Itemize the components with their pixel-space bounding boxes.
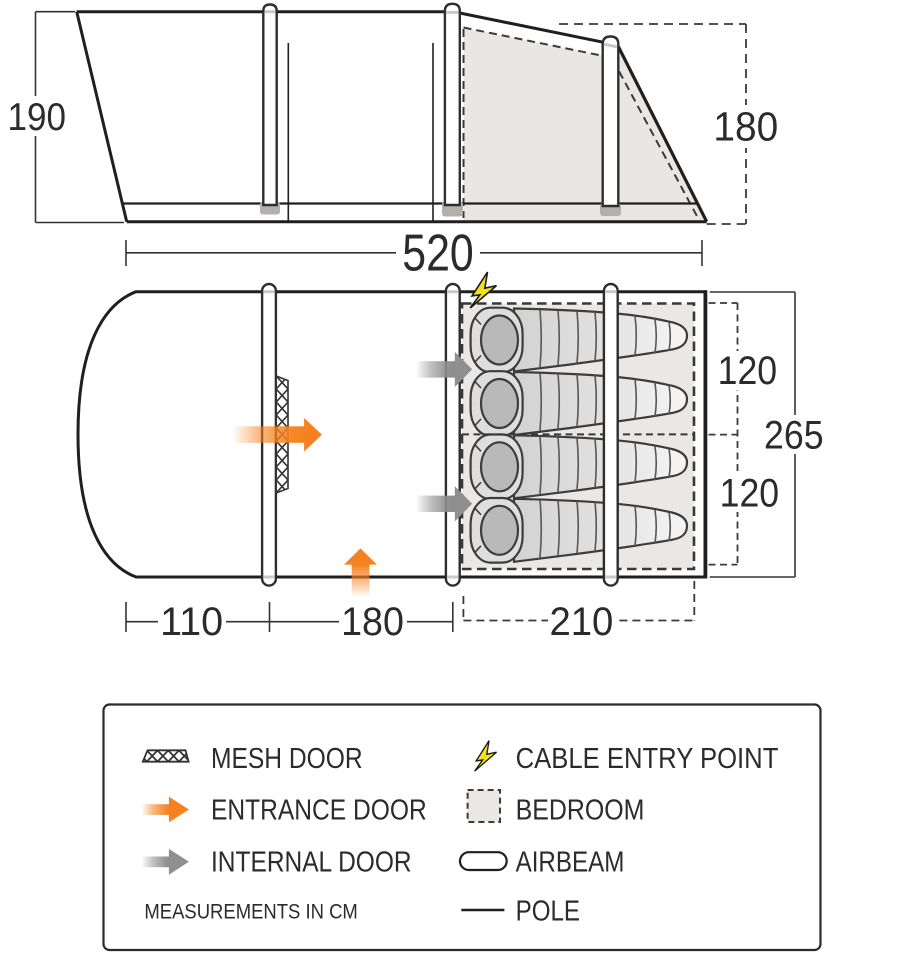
- svg-text:120: 120: [718, 349, 778, 393]
- svg-text:265: 265: [764, 413, 824, 457]
- svg-text:520: 520: [402, 224, 474, 282]
- svg-text:AIRBEAM: AIRBEAM: [516, 847, 625, 879]
- svg-text:CABLE ENTRY POINT: CABLE ENTRY POINT: [516, 743, 779, 775]
- svg-text:MESH DOOR: MESH DOOR: [211, 743, 363, 775]
- svg-text:120: 120: [720, 472, 780, 516]
- svg-text:190: 190: [8, 96, 67, 139]
- svg-text:MEASUREMENTS IN CM: MEASUREMENTS IN CM: [144, 900, 357, 923]
- svg-text:ENTRANCE DOOR: ENTRANCE DOOR: [211, 794, 427, 826]
- svg-text:180: 180: [341, 600, 404, 644]
- svg-text:INTERNAL DOOR: INTERNAL DOOR: [211, 847, 412, 879]
- svg-text:110: 110: [160, 600, 223, 644]
- svg-text:BEDROOM: BEDROOM: [516, 794, 645, 826]
- svg-text:POLE: POLE: [516, 895, 580, 927]
- svg-text:180: 180: [713, 104, 778, 150]
- svg-text:210: 210: [549, 600, 613, 644]
